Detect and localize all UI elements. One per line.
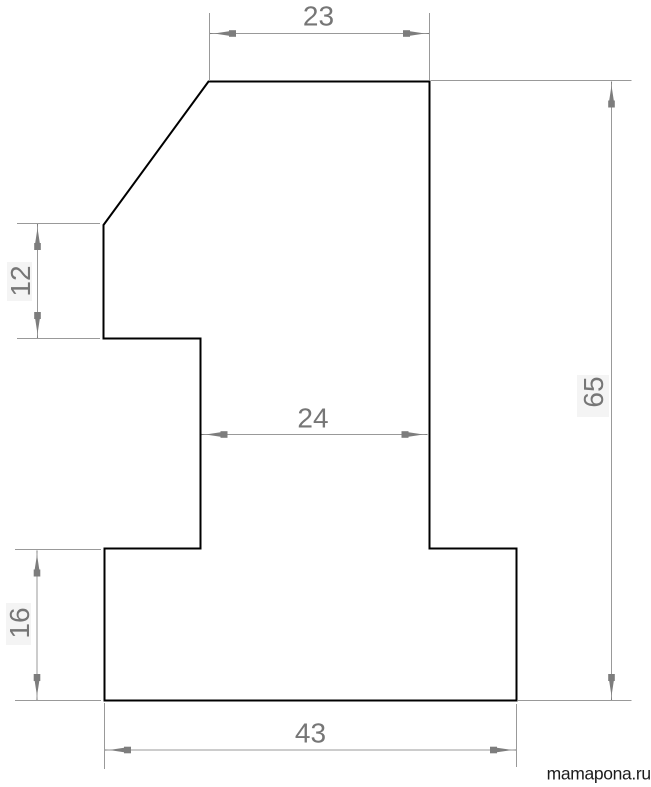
- svg-text:43: 43: [295, 718, 326, 749]
- svg-text:16: 16: [4, 607, 35, 638]
- svg-text:65: 65: [578, 376, 609, 407]
- svg-text:23: 23: [303, 1, 334, 32]
- svg-text:12: 12: [5, 265, 36, 296]
- svg-text:24: 24: [297, 403, 328, 434]
- svg-text:mamapona.ru: mamapona.ru: [547, 764, 651, 784]
